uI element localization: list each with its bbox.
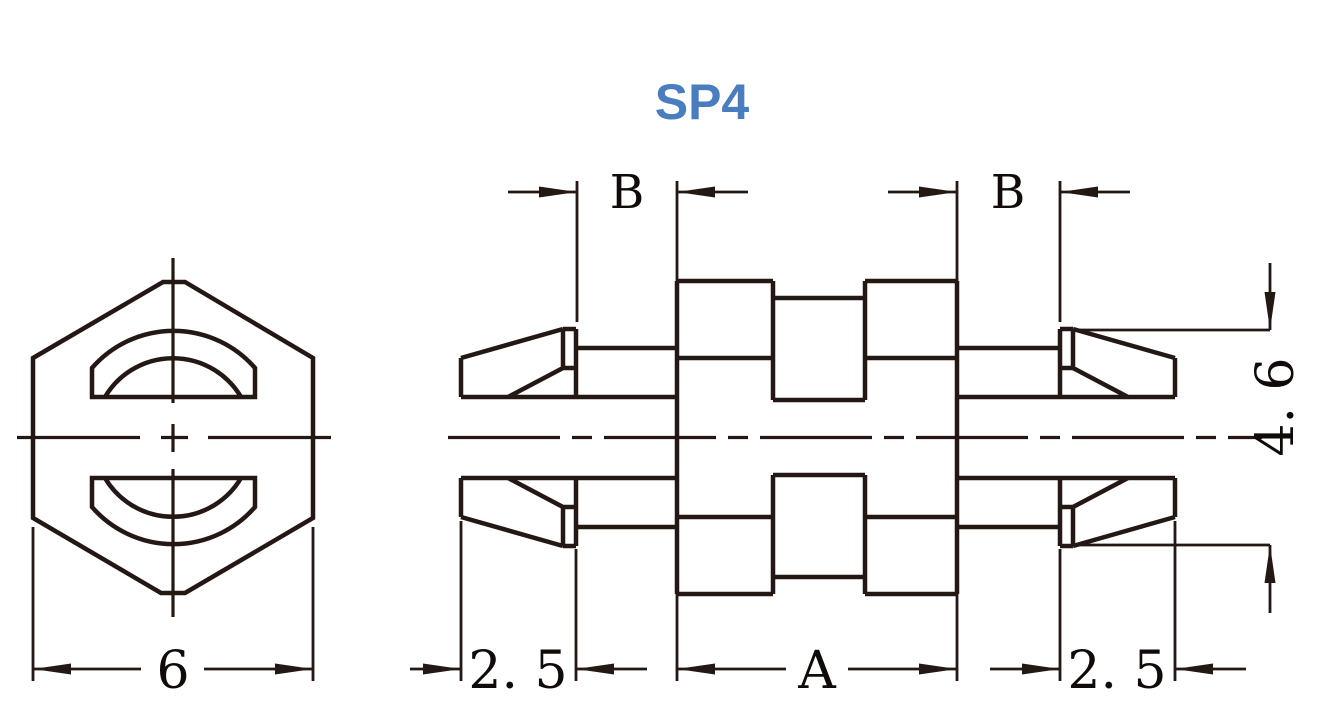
dim-barb-right: 2. 5 [990, 521, 1246, 701]
dim-label-hex-width: 6 [156, 641, 189, 701]
dim-barb-left: 2. 5 [410, 521, 647, 701]
dim-label-barb-right: 2. 5 [1067, 641, 1166, 701]
snap-prong-upper-left [461, 329, 677, 397]
side-view [448, 281, 1262, 594]
dim-label-barb-left: 2. 5 [468, 641, 567, 701]
dim-label-groove-left: B [610, 165, 645, 220]
dim-label-body-length: A [797, 641, 837, 701]
end-view [17, 258, 331, 617]
dim-label-barb-height: 4. 6 [1246, 357, 1306, 456]
technical-drawing: SP4 6 B [0, 0, 1323, 705]
snap-prong-upper-right [957, 329, 1175, 397]
drawing-sheet: SP4 6 B [0, 0, 1323, 705]
dim-groove-right: B [888, 165, 1130, 322]
dim-label-groove-right: B [991, 165, 1026, 220]
snap-prong-lower-right [957, 478, 1175, 546]
drawing-title: SP4 [655, 74, 750, 130]
dim-groove-left: B [508, 165, 748, 322]
snap-prong-lower-left [461, 478, 677, 546]
dim-body-length: A [677, 594, 957, 701]
